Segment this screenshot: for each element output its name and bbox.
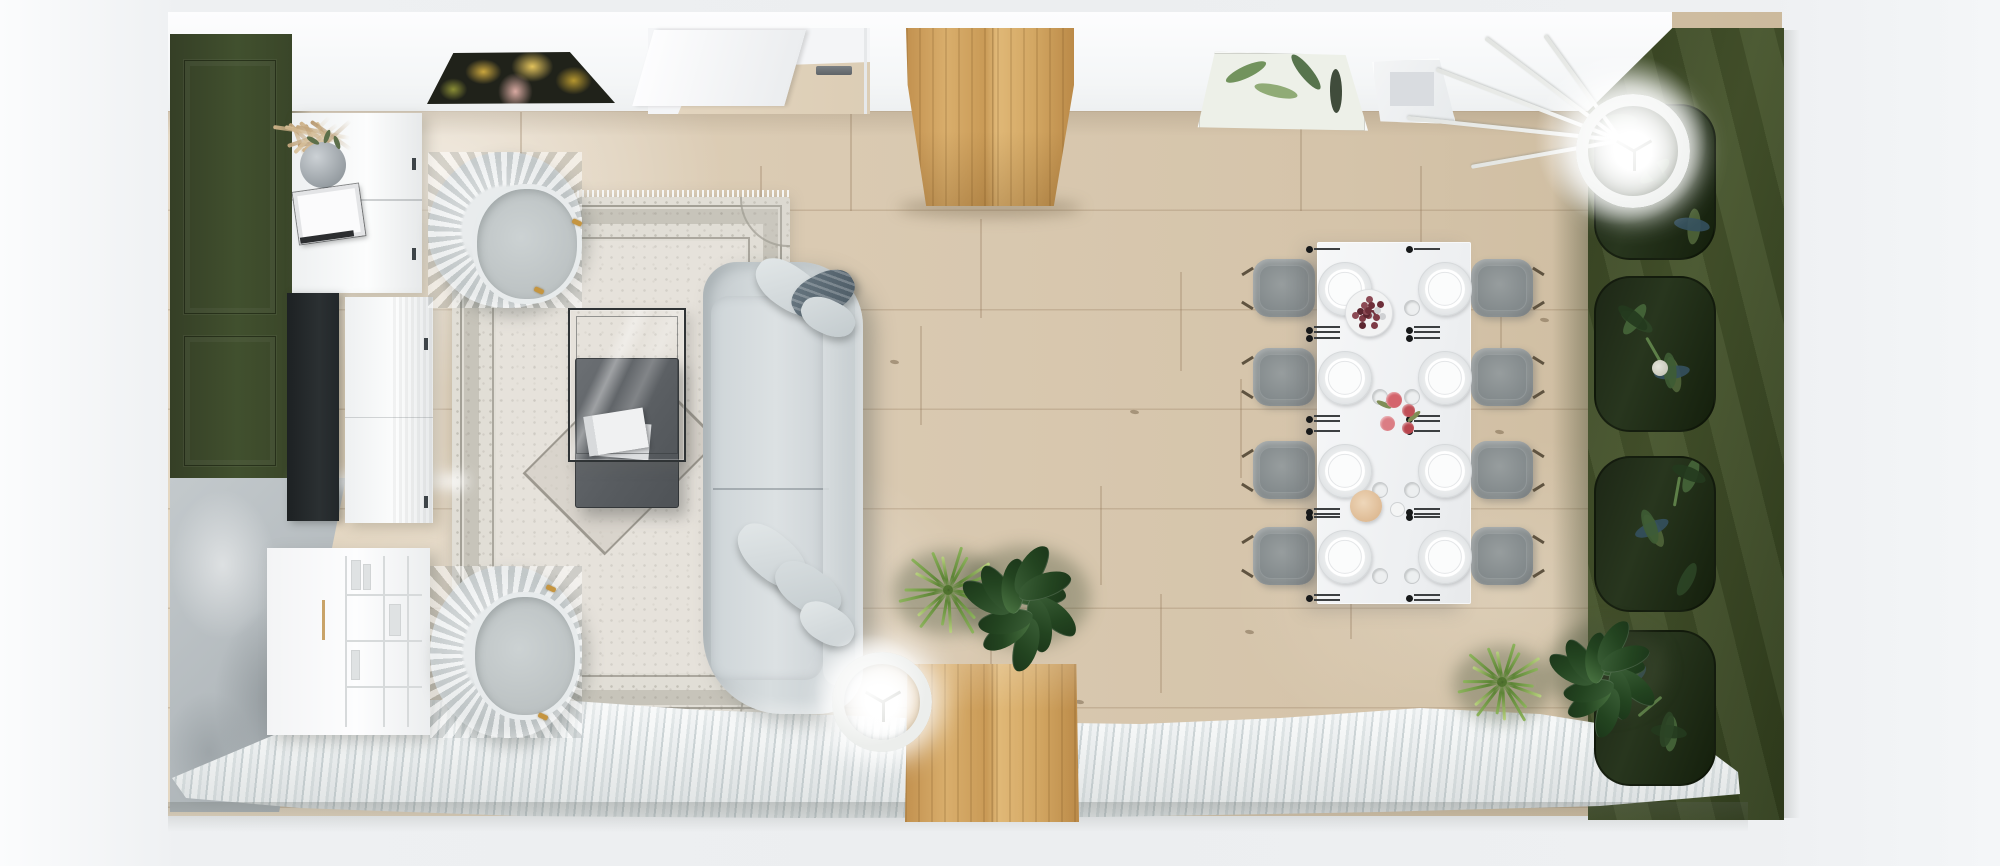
water-glass bbox=[1404, 300, 1420, 316]
cutlery-dot bbox=[1306, 335, 1313, 342]
white-sideboard bbox=[267, 548, 430, 735]
cabinet-handle bbox=[412, 158, 416, 170]
dining-chair-cushion bbox=[1259, 533, 1309, 579]
water-glass bbox=[1404, 568, 1420, 584]
flower-blossom bbox=[1402, 422, 1414, 434]
white-tall-cabinet bbox=[345, 297, 433, 523]
dining-chair bbox=[1253, 259, 1315, 317]
door-handle bbox=[816, 66, 852, 75]
armchair-seat bbox=[472, 184, 582, 304]
cutlery-line bbox=[1314, 326, 1340, 328]
door-leaf bbox=[632, 30, 806, 106]
plate-inner-ring bbox=[1428, 454, 1462, 488]
sofa-ring-floor-lamp-glow bbox=[795, 615, 945, 765]
water-glass bbox=[1404, 482, 1420, 498]
armchair bbox=[428, 152, 582, 308]
flower-centerpiece bbox=[1376, 388, 1424, 440]
plate-inner-ring bbox=[1428, 361, 1462, 395]
plank-joint bbox=[1180, 272, 1182, 371]
botanical-arch-panel bbox=[1594, 276, 1716, 432]
flower-blossom bbox=[1402, 404, 1415, 417]
oak-closet bbox=[906, 28, 1074, 206]
wood-knot bbox=[890, 359, 899, 364]
cutlery-line bbox=[1314, 599, 1340, 601]
plate-inner-ring bbox=[1328, 540, 1362, 574]
wood-knot bbox=[1495, 429, 1504, 434]
dining-chair bbox=[1253, 527, 1315, 585]
book bbox=[363, 564, 371, 590]
cutlery-line bbox=[1314, 331, 1340, 333]
berry bbox=[1373, 314, 1380, 321]
light-botanical-print bbox=[1196, 50, 1368, 134]
room-top-down-render: Top-down 3D render of a rectangular livi… bbox=[0, 0, 2000, 866]
place-setting-plate bbox=[1318, 530, 1372, 584]
dining-chair bbox=[1253, 441, 1315, 499]
cutlery-line bbox=[1314, 508, 1340, 510]
water-glass bbox=[1372, 568, 1388, 584]
cutlery-dot bbox=[1406, 327, 1413, 334]
armchair bbox=[430, 566, 582, 738]
book bbox=[351, 650, 360, 680]
shelf-divider bbox=[345, 556, 347, 727]
cutlery-dot bbox=[1306, 416, 1313, 423]
dining-chair bbox=[1471, 259, 1533, 317]
plate-inner-ring bbox=[1328, 454, 1362, 488]
berry bbox=[1379, 313, 1386, 320]
cutlery-line bbox=[1414, 337, 1440, 339]
dining-chair-cushion bbox=[1259, 265, 1309, 311]
dining-chair bbox=[1471, 527, 1533, 585]
plank-joint bbox=[1240, 379, 1242, 478]
cutlery-dot bbox=[1406, 246, 1413, 253]
tv-panel bbox=[287, 293, 339, 521]
arch-leaf bbox=[1673, 561, 1701, 599]
palm-frond bbox=[904, 589, 948, 592]
book bbox=[389, 604, 401, 636]
door-frame bbox=[864, 28, 867, 114]
cutlery-dot bbox=[1306, 428, 1313, 435]
cabinet-handle bbox=[424, 496, 428, 508]
shelf bbox=[345, 594, 422, 596]
cutlery-line bbox=[1414, 594, 1440, 596]
cutlery-dot bbox=[1406, 514, 1413, 521]
shelf bbox=[345, 640, 422, 642]
cutlery-line bbox=[1414, 513, 1440, 515]
dining-chair bbox=[1471, 441, 1533, 499]
cutlery-dot bbox=[1406, 335, 1413, 342]
cutlery-line bbox=[1314, 420, 1340, 422]
botanical-arch-panel bbox=[1594, 456, 1716, 612]
dining-chair bbox=[1471, 348, 1533, 406]
cutlery-line bbox=[1314, 337, 1340, 339]
cutlery-dot bbox=[1306, 514, 1313, 521]
cutlery-line bbox=[1414, 516, 1440, 518]
cutlery-dot bbox=[1406, 595, 1413, 602]
print-matte bbox=[1390, 72, 1434, 106]
plate-inner-ring bbox=[1428, 272, 1462, 306]
place-setting-plate bbox=[1318, 351, 1372, 405]
place-setting-plate bbox=[1418, 351, 1472, 405]
cutlery-line bbox=[1314, 516, 1340, 518]
sofa-cushion-seam bbox=[713, 488, 829, 490]
shelf-divider bbox=[383, 556, 385, 727]
plank-joint bbox=[920, 326, 922, 425]
sideboard-handle bbox=[322, 600, 325, 640]
print-leaf bbox=[1253, 80, 1299, 102]
dining-chair-cushion bbox=[1259, 354, 1309, 400]
cutlery-dot bbox=[1306, 246, 1313, 253]
berry bbox=[1352, 312, 1359, 319]
cutlery-line bbox=[1414, 326, 1440, 328]
plate-inner-ring bbox=[1428, 540, 1462, 574]
dining-chair-cushion bbox=[1477, 533, 1527, 579]
berry bbox=[1374, 307, 1381, 314]
corner-ring-floor-lamp-glow bbox=[1506, 24, 1736, 254]
print-leaf bbox=[1330, 69, 1343, 113]
wall-panel-molding bbox=[184, 336, 276, 466]
arch-leaf-highlight bbox=[1673, 476, 1681, 506]
cutlery-line bbox=[1314, 415, 1340, 417]
doorway bbox=[648, 28, 870, 114]
shelf bbox=[345, 686, 422, 688]
dining-chair bbox=[1253, 348, 1315, 406]
shelf-divider bbox=[407, 556, 409, 727]
wood-knot bbox=[1245, 629, 1254, 634]
wood-knot bbox=[1540, 317, 1549, 322]
cutlery-line bbox=[1414, 248, 1440, 250]
dining-chair-cushion bbox=[1477, 447, 1527, 493]
white-rose bbox=[1652, 360, 1668, 376]
plank-joint bbox=[1100, 486, 1102, 585]
plank-joint bbox=[1160, 594, 1162, 693]
flower-blossom bbox=[1386, 392, 1402, 408]
bread-plate bbox=[1350, 490, 1382, 522]
plate-inner-ring bbox=[1328, 361, 1362, 395]
armchair-seat bbox=[470, 592, 580, 720]
book bbox=[351, 560, 361, 590]
berry-bowl bbox=[1345, 289, 1393, 337]
cabinet-handle bbox=[424, 338, 428, 350]
cutlery-line bbox=[1414, 508, 1440, 510]
place-setting-plate bbox=[1418, 530, 1472, 584]
cutlery-line bbox=[1314, 430, 1340, 432]
berry bbox=[1359, 322, 1366, 329]
plank-joint bbox=[980, 219, 982, 318]
cabinet-handle bbox=[412, 248, 416, 260]
berry bbox=[1365, 307, 1372, 314]
cutlery-line bbox=[1314, 513, 1340, 515]
cutlery-line bbox=[1414, 599, 1440, 601]
print-leaf bbox=[1287, 51, 1324, 93]
flower-blossom bbox=[1380, 416, 1395, 431]
place-setting-plate bbox=[1418, 262, 1472, 316]
berry bbox=[1371, 322, 1378, 329]
sphere-vase bbox=[300, 142, 346, 188]
cutlery-dot bbox=[1306, 595, 1313, 602]
cutlery-line bbox=[1314, 248, 1340, 250]
wood-knot bbox=[1130, 409, 1139, 414]
cutlery-dot bbox=[1306, 327, 1313, 334]
place-setting-plate bbox=[1418, 444, 1472, 498]
dining-chair-cushion bbox=[1259, 447, 1309, 493]
small-cup bbox=[1390, 502, 1405, 517]
dining-chair-cushion bbox=[1477, 354, 1527, 400]
cutlery-line bbox=[1414, 331, 1440, 333]
room-outer-shadow bbox=[1784, 30, 1800, 818]
cutlery-line bbox=[1314, 594, 1340, 596]
dining-chair-cushion bbox=[1477, 265, 1527, 311]
